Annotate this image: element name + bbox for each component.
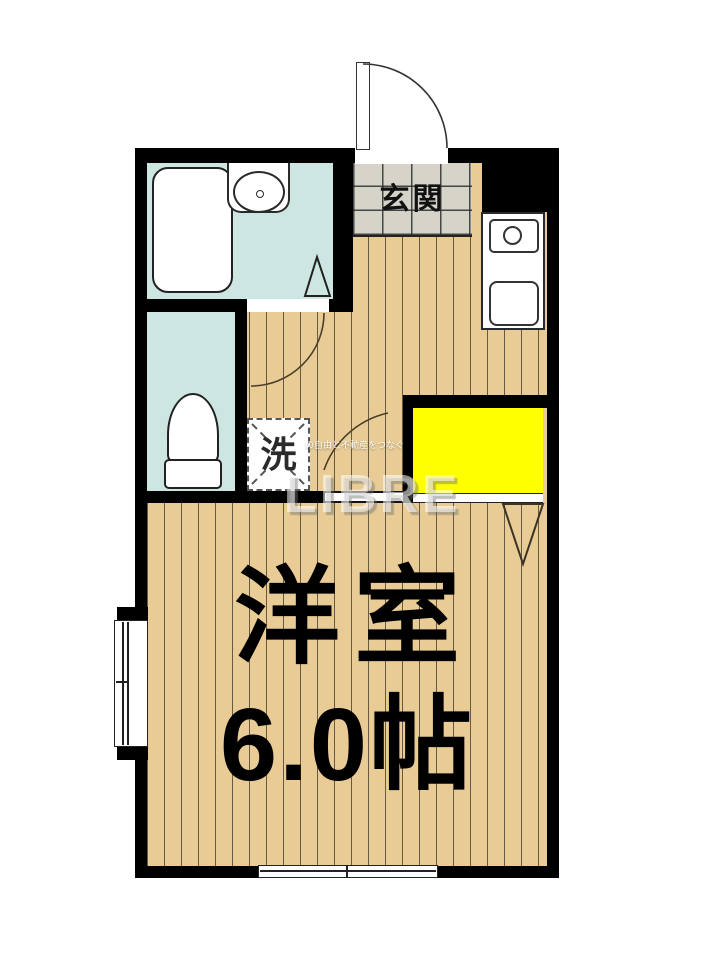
entrance-door-arc bbox=[363, 64, 447, 148]
toilet-right-wall bbox=[235, 299, 247, 503]
left-window-pane-line bbox=[127, 622, 129, 745]
main-room-size-label: 6.0帖 bbox=[147, 690, 547, 800]
corner-wall-block bbox=[482, 163, 548, 212]
bottom-window-tick bbox=[346, 866, 348, 877]
left-window-cap-top bbox=[117, 607, 148, 621]
entrance-door-threshold bbox=[355, 148, 448, 164]
bathroom-door-opening bbox=[245, 299, 329, 312]
bathtub bbox=[152, 167, 233, 293]
entrance-label: 玄関 bbox=[353, 163, 472, 237]
closet-top-wall bbox=[403, 395, 548, 408]
kitchen-sink bbox=[489, 281, 539, 326]
stove-burner-icon bbox=[503, 226, 522, 245]
watermark-tagline: の自由と不動産をつなぐ bbox=[305, 438, 435, 451]
left-window-cap-bottom bbox=[117, 746, 148, 760]
sink-drain bbox=[256, 190, 264, 198]
bottom-window-pane-line bbox=[260, 870, 436, 872]
left-window-tick bbox=[116, 681, 129, 683]
floorplan-canvas: 玄関 洗 bbox=[0, 0, 705, 961]
bathroom-right-wall bbox=[333, 148, 353, 312]
main-room-name-label: 洋室 bbox=[147, 560, 547, 676]
watermark-brand: LIBRE bbox=[262, 458, 482, 530]
entrance-door bbox=[356, 62, 370, 150]
left-window-pane-line bbox=[122, 622, 124, 745]
toilet-tank bbox=[164, 459, 222, 489]
window-left bbox=[114, 620, 148, 747]
